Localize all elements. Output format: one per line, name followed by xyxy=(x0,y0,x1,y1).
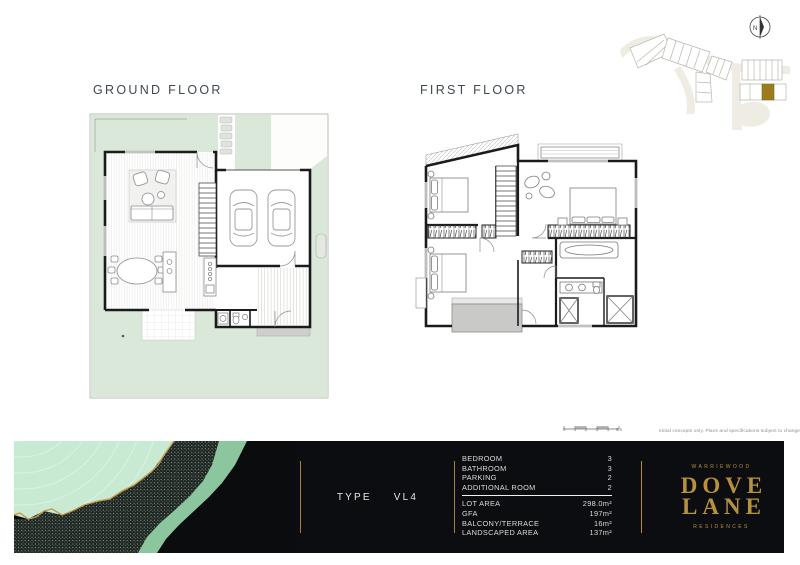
entry-floor xyxy=(257,268,309,325)
footer-bar: TYPE VL4 BEDROOM 3 BATHROOM 3 PARKING 2 … xyxy=(14,441,784,553)
car xyxy=(230,190,257,246)
type-block: TYPE VL4 xyxy=(300,441,455,553)
spec-row: BEDROOM 3 xyxy=(462,454,612,464)
spec-divider xyxy=(462,495,612,496)
spec-value: 16m² xyxy=(594,519,612,529)
scale-label: 3 xyxy=(596,427,599,432)
brand-name-line2: LANE xyxy=(682,496,766,517)
landscape-artwork xyxy=(14,441,295,553)
stepping-stones-path xyxy=(218,115,235,156)
spec-value: 3 xyxy=(608,454,612,464)
bed-1 xyxy=(428,171,468,219)
toilet xyxy=(594,286,600,293)
spec-label: LOT AREA xyxy=(462,499,500,509)
spec-label: BEDROOM xyxy=(462,454,502,464)
first-floor-plan xyxy=(408,130,646,348)
pergola-strip xyxy=(538,144,622,161)
spec-row: GFA 197m² xyxy=(462,509,612,519)
spec-row: BALCONY/TERRACE 16m² xyxy=(462,519,612,529)
shower-2 xyxy=(560,298,578,323)
spec-label: PARKING xyxy=(462,473,497,483)
highlighted-lot xyxy=(762,84,774,100)
scale-label: 5m xyxy=(616,427,622,432)
driveway xyxy=(271,115,327,170)
ground-floor-title: GROUND FLOOR xyxy=(93,83,223,97)
gold-rule-right xyxy=(454,461,455,533)
spec-label: LANDSCAPED AREA xyxy=(462,528,538,538)
spec-value: 137m² xyxy=(590,528,612,538)
porch-step xyxy=(257,327,310,336)
brand-location: WARRIEWOOD xyxy=(692,464,752,470)
spec-value: 298.0m² xyxy=(583,499,612,509)
brand-name-line1: DOVE xyxy=(681,475,767,496)
type-label: TYPE xyxy=(337,492,372,503)
garden-shrub xyxy=(122,335,125,338)
spec-row: ADDITIONAL ROOM 2 xyxy=(462,483,612,493)
svg-text:N: N xyxy=(753,26,757,32)
shower xyxy=(607,296,633,323)
spec-row: BATHROOM 3 xyxy=(462,464,612,474)
spec-label: BATHROOM xyxy=(462,464,507,474)
gold-rule-left xyxy=(300,461,301,533)
spec-label: GFA xyxy=(462,509,478,519)
terrace-paving xyxy=(142,310,195,340)
site-locality-map: N xyxy=(620,10,792,130)
brand-logo: WARRIEWOOD DOVE LANE RESIDENCES xyxy=(659,441,784,553)
spec-value: 2 xyxy=(608,473,612,483)
spec-value: 3 xyxy=(608,464,612,474)
scale-bar: 0 1 2 3 4 5m xyxy=(561,419,629,433)
spec-label: BALCONY/TERRACE xyxy=(462,519,539,529)
spec-row: LANDSCAPED AREA 137m² xyxy=(462,528,612,538)
compass-icon: N xyxy=(750,15,770,39)
stairs xyxy=(199,183,216,256)
scale-label: 0 xyxy=(563,427,566,432)
brand-descriptor: RESIDENCES xyxy=(693,524,750,530)
floorplan-sheet: GROUND FLOOR FIRST FLOOR xyxy=(0,0,800,565)
spec-label: ADDITIONAL ROOM xyxy=(462,483,536,493)
side-path xyxy=(316,234,326,258)
spec-value: 197m² xyxy=(590,509,612,519)
spec-row: LOT AREA 298.0m² xyxy=(462,499,612,509)
type-value: VL4 xyxy=(394,492,418,503)
bed-2 xyxy=(428,247,466,299)
spec-table: BEDROOM 3 BATHROOM 3 PARKING 2 ADDITIONA… xyxy=(462,454,612,538)
first-floor-title: FIRST FLOOR xyxy=(420,83,528,97)
window-bay xyxy=(416,278,426,308)
living-room-furniture xyxy=(129,170,176,222)
stairs xyxy=(496,166,516,236)
scale-label: 2 xyxy=(585,427,588,432)
balcony xyxy=(452,298,522,332)
bathtub xyxy=(560,242,618,258)
disclaimer-text: Initial concepts only. Plans and specifi… xyxy=(659,429,799,434)
scale-label: 4 xyxy=(607,427,610,432)
car xyxy=(268,190,295,246)
spec-value: 2 xyxy=(608,483,612,493)
ground-floor-plan xyxy=(85,106,333,402)
brand-divider xyxy=(641,461,642,533)
spec-row: PARKING 2 xyxy=(462,473,612,483)
scale-label: 1 xyxy=(574,427,577,432)
